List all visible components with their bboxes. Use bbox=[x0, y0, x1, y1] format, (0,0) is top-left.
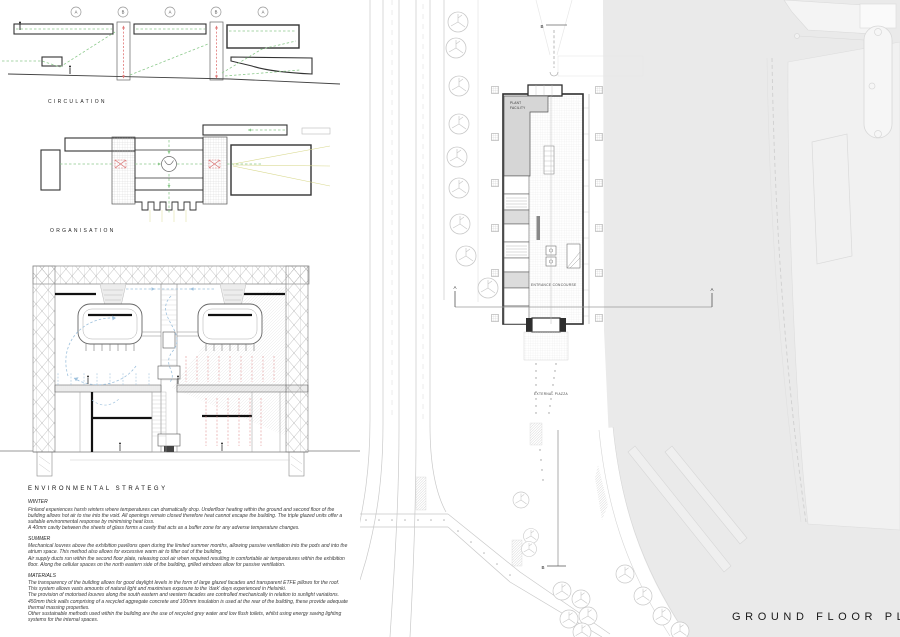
circulation-building-masses bbox=[14, 24, 312, 74]
presentation-sheet: A B A B A bbox=[0, 0, 900, 637]
environmental-strategy-heading: ENVIRONMENTAL STRATEGY bbox=[28, 486, 168, 492]
section-marker-b-top: B bbox=[540, 24, 543, 29]
museum-building: PLANT FACILITY bbox=[503, 85, 589, 332]
winter-paragraph: Finland experiences harsh winters where … bbox=[28, 507, 352, 531]
south-entrance bbox=[526, 318, 566, 332]
plant-facility-label-line2: FACILITY bbox=[510, 106, 526, 110]
grid-marker-a2: A bbox=[169, 10, 172, 15]
section-marker-a-left: A bbox=[453, 285, 456, 290]
site-plan-drawing: PLANT FACILITY bbox=[360, 0, 900, 637]
promenade-bollards bbox=[365, 519, 511, 576]
foundations bbox=[37, 452, 304, 476]
environmental-section-drawing bbox=[0, 248, 360, 484]
north-vestibule bbox=[528, 85, 562, 96]
crosswalk-hatches bbox=[416, 477, 522, 566]
organisation-diagram bbox=[0, 116, 360, 228]
cellular-rooms bbox=[504, 176, 529, 324]
piazza-dotted-axis bbox=[535, 363, 556, 480]
grid-marker-a3: A bbox=[262, 10, 265, 15]
ground-floor-plan-panel: PLANT FACILITY bbox=[360, 0, 900, 637]
grid-marker-a1: A bbox=[75, 10, 78, 15]
summer-paragraph: Mechanical louvres above the exhibition … bbox=[28, 543, 352, 567]
plant-facility-label-line1: PLANT bbox=[510, 101, 521, 105]
materials-heading: MATERIALS bbox=[28, 573, 352, 579]
plan-title: GROUND FLOOR PLAN bbox=[732, 611, 900, 623]
moored-vessel bbox=[864, 26, 892, 138]
organisation-label: ORGANISATION bbox=[50, 228, 116, 234]
grid-marker-b2: B bbox=[215, 10, 218, 15]
ground-lines bbox=[0, 451, 360, 460]
section-marker-a-right: A bbox=[710, 287, 713, 292]
circulation-diagram: A B A B A bbox=[0, 0, 360, 112]
summer-heading: SUMMER bbox=[28, 536, 352, 542]
ground-line bbox=[8, 74, 340, 84]
materials-paragraph: The transparency of the building allows … bbox=[28, 580, 352, 623]
grid-marker-b1: B bbox=[122, 10, 125, 15]
circulation-label: CIRCULATION bbox=[48, 99, 107, 105]
environmental-strategy-text: WINTER Finland experiences harsh winters… bbox=[28, 499, 352, 623]
section-marker-b-bottom: B bbox=[541, 565, 544, 570]
second-floor-plate bbox=[55, 385, 308, 392]
entrance-concourse-label: ENTRANCE CONCOURSE bbox=[531, 283, 576, 287]
external-piazza: EXTERNAL PIAZZA bbox=[524, 332, 569, 481]
external-piazza-label: EXTERNAL PIAZZA bbox=[534, 392, 569, 396]
winter-heading: WINTER bbox=[28, 499, 352, 505]
